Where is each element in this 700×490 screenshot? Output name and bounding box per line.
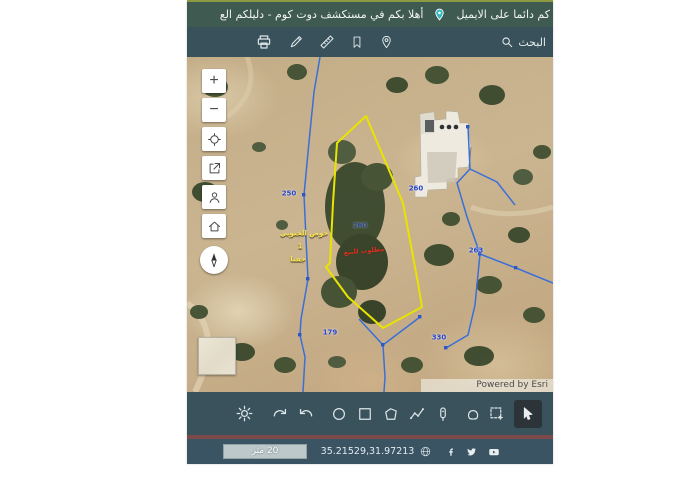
compass-button[interactable] bbox=[200, 246, 228, 274]
map-vector-layer bbox=[187, 57, 553, 392]
draw-polyline-button[interactable] bbox=[408, 405, 426, 423]
announcement-marquee: كم دائما على الايميل أهلا بكم في مستكشف … bbox=[187, 0, 553, 27]
bookmark-icon bbox=[350, 34, 364, 50]
youtube-link[interactable] bbox=[487, 446, 501, 458]
draw-circle-button[interactable] bbox=[330, 405, 348, 423]
redo-icon bbox=[270, 404, 289, 423]
polyline-tool-icon bbox=[408, 405, 426, 423]
drawing-toolbar bbox=[187, 392, 553, 435]
coordinates-value: 35.21529,31.97213 bbox=[321, 446, 415, 457]
map-canvas[interactable]: 250 260 260 263 179 330 حوض الجنوبي 1 جف… bbox=[187, 57, 553, 392]
marquee-text-left: أهلا بكم في مستكشف دوت كوم - دليلكم الع bbox=[220, 8, 424, 21]
polygon-tool-icon bbox=[382, 405, 400, 423]
freehand-shape-icon bbox=[464, 405, 482, 423]
overview-inset-map[interactable] bbox=[198, 337, 236, 375]
status-bar: 20 متر 35.21529,31.97213 bbox=[187, 439, 553, 464]
top-toolbar: البحث bbox=[187, 27, 553, 57]
draw-marker-button[interactable] bbox=[434, 405, 452, 423]
share-button[interactable] bbox=[202, 156, 226, 180]
draw-button[interactable] bbox=[288, 34, 304, 50]
pencil-icon bbox=[288, 34, 304, 50]
circle-tool-icon bbox=[330, 405, 348, 423]
twitter-icon bbox=[465, 446, 478, 458]
search-control[interactable]: البحث bbox=[500, 35, 546, 49]
share-icon bbox=[207, 161, 222, 176]
home-icon bbox=[207, 219, 222, 234]
locate-pin-button[interactable] bbox=[379, 34, 394, 50]
undo-button[interactable] bbox=[297, 404, 316, 423]
zoom-out-button[interactable]: − bbox=[202, 98, 226, 122]
draw-rectangle-button[interactable] bbox=[356, 405, 374, 423]
printer-icon bbox=[255, 33, 273, 51]
pointer-tool-button[interactable] bbox=[514, 400, 542, 428]
map-application: كم دائما على الايميل أهلا بكم في مستكشف … bbox=[187, 0, 553, 464]
home-button[interactable] bbox=[202, 214, 226, 238]
bookmark-button[interactable] bbox=[350, 34, 364, 50]
settings-button[interactable] bbox=[235, 404, 254, 423]
compass-north-icon bbox=[205, 251, 223, 269]
map-attribution: Powered by Esri bbox=[421, 379, 553, 392]
marquee-text-right: كم دائما على الايميل bbox=[456, 8, 550, 21]
map-controls: + − bbox=[202, 69, 228, 274]
location-pin-icon bbox=[379, 34, 394, 50]
user-button[interactable] bbox=[202, 185, 226, 209]
draw-freehand-button[interactable] bbox=[464, 405, 482, 423]
youtube-icon bbox=[487, 446, 501, 458]
location-pin-icon bbox=[433, 7, 446, 22]
locate-icon bbox=[207, 132, 222, 147]
select-area-button[interactable] bbox=[488, 405, 506, 423]
cursor-arrow-icon bbox=[519, 405, 537, 423]
coordinates-display: 35.21529,31.97213 bbox=[321, 445, 433, 458]
vegetation bbox=[190, 64, 551, 373]
twitter-link[interactable] bbox=[465, 446, 478, 458]
page: كم دائما على الايميل أهلا بكم في مستكشف … bbox=[0, 0, 700, 490]
draw-polygon-button[interactable] bbox=[382, 405, 400, 423]
scale-bar: 20 متر bbox=[223, 444, 307, 459]
ruler-icon bbox=[319, 34, 335, 50]
social-links bbox=[446, 446, 501, 458]
building bbox=[415, 111, 471, 197]
zoom-in-button[interactable]: + bbox=[202, 69, 226, 93]
facebook-icon bbox=[446, 446, 456, 458]
facebook-link[interactable] bbox=[446, 446, 456, 458]
print-button[interactable] bbox=[255, 33, 273, 51]
search-icon bbox=[500, 35, 514, 49]
select-area-icon bbox=[488, 405, 506, 423]
gear-icon bbox=[235, 404, 254, 423]
undo-icon bbox=[297, 404, 316, 423]
locate-button[interactable] bbox=[202, 127, 226, 151]
globe-icon bbox=[419, 445, 432, 458]
search-label: البحث bbox=[518, 36, 546, 49]
user-icon bbox=[207, 190, 222, 205]
marker-tool-icon bbox=[434, 405, 452, 423]
redo-button[interactable] bbox=[270, 404, 289, 423]
measure-button[interactable] bbox=[319, 34, 335, 50]
rectangle-tool-icon bbox=[356, 405, 374, 423]
